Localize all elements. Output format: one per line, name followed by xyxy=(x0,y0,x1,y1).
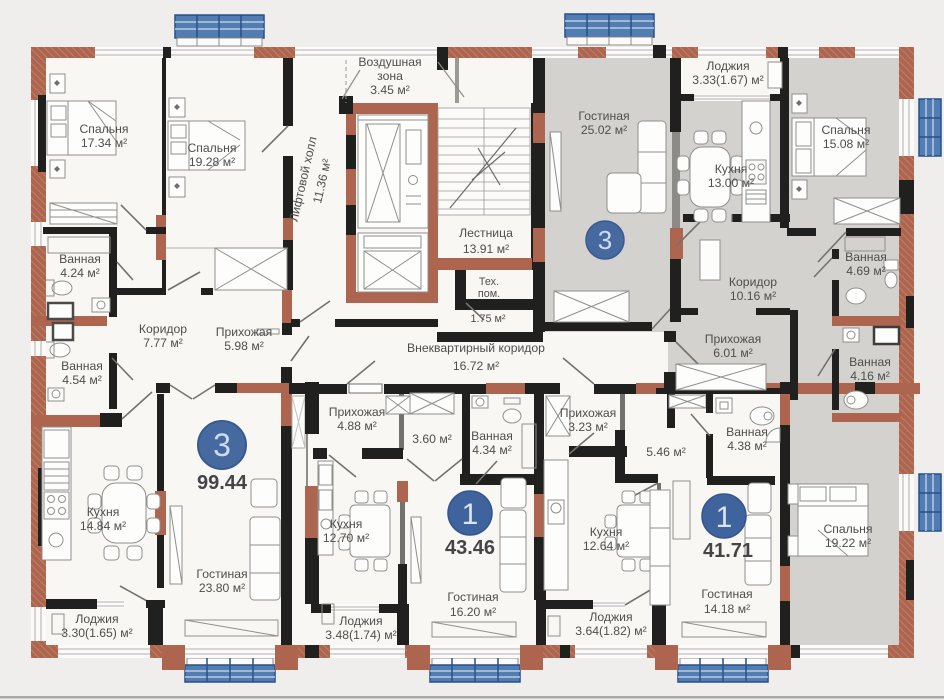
svg-text:15.08 м²: 15.08 м² xyxy=(823,137,869,151)
svg-text:Спальня: Спальня xyxy=(824,522,873,536)
svg-text:23.80 м²: 23.80 м² xyxy=(199,581,245,595)
svg-text:Прихожая: Прихожая xyxy=(329,405,385,419)
svg-text:Ванная: Ванная xyxy=(61,359,103,373)
svg-text:Коридор: Коридор xyxy=(729,275,777,289)
svg-text:Ванная: Ванная xyxy=(849,355,891,369)
svg-text:Ванная: Ванная xyxy=(726,425,768,439)
svg-text:Ванная: Ванная xyxy=(471,429,513,443)
svg-text:4.24 м²: 4.24 м² xyxy=(60,266,100,280)
svg-text:41.71: 41.71 xyxy=(703,540,753,562)
svg-text:Внеквартирный коридор: Внеквартирный коридор xyxy=(407,341,545,355)
svg-text:Гостиная: Гостиная xyxy=(196,567,247,581)
svg-text:Кухня: Кухня xyxy=(715,162,748,176)
svg-text:3.33(1.67) м²: 3.33(1.67) м² xyxy=(692,73,763,87)
svg-text:3.30(1.65) м²: 3.30(1.65) м² xyxy=(61,626,132,640)
svg-text:зона: зона xyxy=(377,69,403,83)
svg-text:Спальня: Спальня xyxy=(822,123,871,137)
svg-text:3.64(1.82) м²: 3.64(1.82) м² xyxy=(575,624,646,638)
svg-text:6.01 м²: 6.01 м² xyxy=(713,346,753,360)
svg-text:3.48(1.74) м²: 3.48(1.74) м² xyxy=(325,628,396,642)
svg-text:Лестница: Лестница xyxy=(459,226,513,240)
svg-text:7.77 м²: 7.77 м² xyxy=(143,336,183,350)
svg-text:Гостиная: Гостиная xyxy=(447,590,498,604)
svg-text:Ванная: Ванная xyxy=(845,250,887,264)
svg-text:Тех.: Тех. xyxy=(479,276,499,288)
svg-text:4.69 м²: 4.69 м² xyxy=(846,264,886,278)
svg-text:16.72 м²: 16.72 м² xyxy=(453,359,499,373)
svg-text:13.91 м²: 13.91 м² xyxy=(463,242,509,256)
svg-text:16.20 м²: 16.20 м² xyxy=(450,605,496,619)
svg-text:Кухня: Кухня xyxy=(87,505,120,519)
svg-text:Лоджия: Лоджия xyxy=(706,59,749,73)
svg-text:19.22 м²: 19.22 м² xyxy=(825,536,871,550)
svg-text:3.23 м²: 3.23 м² xyxy=(568,420,608,434)
svg-text:пом.: пом. xyxy=(478,288,500,300)
svg-text:Воздушная: Воздушная xyxy=(358,55,421,69)
svg-text:Ванная: Ванная xyxy=(59,252,101,266)
svg-text:14.18 м²: 14.18 м² xyxy=(704,602,750,616)
svg-text:17.34 м²: 17.34 м² xyxy=(81,136,127,150)
svg-text:Прихожая: Прихожая xyxy=(216,325,272,339)
svg-text:5.98 м²: 5.98 м² xyxy=(224,339,264,353)
svg-text:Кухня: Кухня xyxy=(590,525,623,539)
svg-text:Спальня: Спальня xyxy=(80,122,129,136)
svg-text:4.88 м²: 4.88 м² xyxy=(337,419,377,433)
svg-text:Прихожая: Прихожая xyxy=(705,332,761,346)
svg-text:Гостиная: Гостиная xyxy=(578,109,629,123)
svg-text:3.60 м²: 3.60 м² xyxy=(412,432,452,446)
svg-text:3: 3 xyxy=(598,225,612,255)
svg-text:Лоджия: Лоджия xyxy=(75,612,118,626)
svg-text:Лоджия: Лоджия xyxy=(589,610,632,624)
svg-text:3.45 м²: 3.45 м² xyxy=(370,83,410,97)
svg-text:Лоджия: Лоджия xyxy=(339,614,382,628)
svg-text:19.28 м²: 19.28 м² xyxy=(189,155,235,169)
svg-text:99.44: 99.44 xyxy=(197,472,248,494)
svg-text:Коридор: Коридор xyxy=(139,322,187,336)
svg-text:4.34 м²: 4.34 м² xyxy=(472,443,512,457)
svg-text:10.16 м²: 10.16 м² xyxy=(730,289,776,303)
svg-text:1: 1 xyxy=(716,501,733,534)
svg-text:Кухня: Кухня xyxy=(330,517,363,531)
svg-text:5.46 м²: 5.46 м² xyxy=(646,445,686,459)
svg-text:3: 3 xyxy=(213,427,231,463)
svg-text:13.00 м²: 13.00 м² xyxy=(708,176,754,190)
svg-text:1: 1 xyxy=(462,498,479,531)
svg-text:4.54 м²: 4.54 м² xyxy=(62,373,102,387)
svg-text:43.46: 43.46 xyxy=(445,537,495,559)
svg-text:4.38 м²: 4.38 м² xyxy=(727,439,767,453)
svg-text:4.16 м²: 4.16 м² xyxy=(850,369,890,383)
svg-text:Спальня: Спальня xyxy=(188,141,237,155)
svg-text:1.75 м²: 1.75 м² xyxy=(470,313,505,325)
svg-text:14.84 м²: 14.84 м² xyxy=(80,519,126,533)
svg-text:12.64 м²: 12.64 м² xyxy=(583,539,629,553)
svg-text:Гостиная: Гостиная xyxy=(701,587,752,601)
svg-text:25.02 м²: 25.02 м² xyxy=(581,123,627,137)
svg-text:Прихожая: Прихожая xyxy=(560,406,616,420)
svg-text:12.70 м²: 12.70 м² xyxy=(323,531,369,545)
